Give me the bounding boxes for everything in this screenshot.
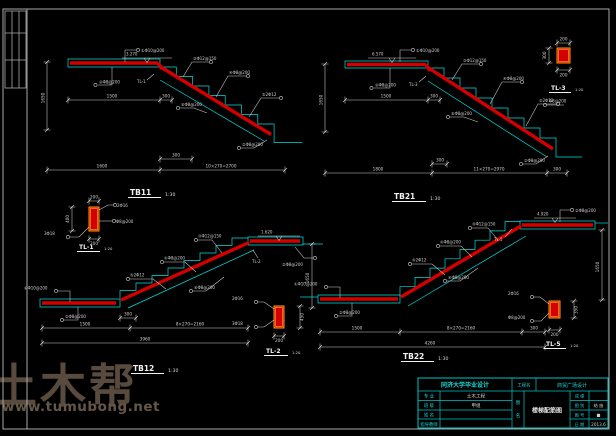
dimension-label: 300 xyxy=(124,312,132,317)
beam-detail-tl5: 3502002Φ16Φ8@200TL-51:20 xyxy=(508,291,579,349)
rebar-callout: 2Φ16 xyxy=(508,291,519,296)
leader-line xyxy=(328,287,340,298)
title-block: 同济大学毕业设计工程名商贸广场设计专 业土木工程班 级甲组姓 名指导教师图名楼梯… xyxy=(418,378,608,428)
drawing-title: TL-3 xyxy=(551,85,566,92)
rebar-callout: ②Φ8@200 xyxy=(65,314,86,319)
cell-text: 结 施 xyxy=(594,402,605,409)
leader-line xyxy=(58,291,70,302)
leader-circle xyxy=(519,162,522,165)
dimension-label: 450 xyxy=(300,313,305,321)
dimension-label: 1650 xyxy=(595,261,600,272)
stair-outline xyxy=(120,238,248,298)
rebar-callout: ⑤2Φ12 xyxy=(262,92,277,97)
rebar-callout: ④Φ8@200 xyxy=(503,76,524,81)
leader-circle xyxy=(254,300,257,303)
rebar-bar xyxy=(426,65,430,72)
cell-text: 图 号 xyxy=(575,413,585,419)
dimension-label: 200 xyxy=(275,338,283,343)
leader-line xyxy=(295,247,313,258)
dimension-label: 3960 xyxy=(140,337,151,342)
rebar-callout: 2Φ16 xyxy=(117,203,128,208)
project-name: 商贸广场设计 xyxy=(557,382,587,389)
leader-line xyxy=(440,246,472,257)
sheet-label: 名 xyxy=(516,412,521,419)
beam-ref-label: TL-2 xyxy=(251,259,261,264)
cell-text: 图 别 xyxy=(575,402,585,409)
level-value: 4.920 xyxy=(537,212,549,217)
cell-text: 日 期 xyxy=(575,422,585,428)
dimension-label: 300 xyxy=(530,326,538,331)
drawing-title: TL-5 xyxy=(546,341,561,348)
sheet-name: 楼梯配筋图 xyxy=(532,407,562,415)
stair-outline xyxy=(274,134,302,143)
dimension-label: 1650 xyxy=(319,94,324,105)
stair-section-tb21: 15003001650180011×270=2970300300①Φ10@200… xyxy=(319,48,583,202)
leader-line xyxy=(534,313,549,321)
stair-outline xyxy=(160,80,264,141)
dimension-label: 10×270=2700 xyxy=(206,164,237,169)
leader-line xyxy=(180,108,207,113)
dimension-label: 8×270=2160 xyxy=(176,322,205,327)
rebar-callout: ⑤2Φ12 xyxy=(130,273,145,278)
rebar-callout: ⑥Φ8@200 xyxy=(194,285,215,290)
rebar-callout: ③Φ12@150 xyxy=(472,222,496,227)
rebar-callout: ②Φ8@200 xyxy=(524,158,545,163)
leader-circle xyxy=(60,318,63,321)
dimension-label: 1600 xyxy=(97,164,108,169)
field-label: 指导教师 xyxy=(420,421,438,428)
rebar-callout: ①Φ10@200 xyxy=(416,48,440,53)
leader-line xyxy=(198,240,222,253)
leader-line xyxy=(534,297,549,304)
beam-detail-tl2: 4502002Φ163Φ18TL-21:20 xyxy=(232,296,305,356)
leader-line xyxy=(70,227,89,237)
drawing-title: TB12 xyxy=(133,364,154,373)
level-mark-icon xyxy=(368,58,416,63)
level-value: 3.270 xyxy=(126,52,138,57)
drawing-scale: 1:30 xyxy=(168,368,178,374)
leader-circle xyxy=(468,226,471,229)
stair-outline xyxy=(428,81,547,157)
dimension-label: 11×270=2970 xyxy=(474,167,505,172)
rebar-callout: ①Φ10@200 xyxy=(294,282,318,287)
leader-circle xyxy=(530,319,533,322)
leader-circle xyxy=(160,260,163,263)
dimension-label: 300 xyxy=(172,153,180,158)
leader-circle xyxy=(530,295,533,298)
beam-detail-tl1: 2004002002Φ16Φ8@2003Φ18TL-11:20 xyxy=(44,195,134,252)
drawing-scale: 1:30 xyxy=(165,192,175,198)
rebar-callout: Φ8@200 xyxy=(549,99,567,104)
school-name: 同济大学毕业设计 xyxy=(441,381,489,389)
leader-circle xyxy=(408,262,411,265)
dimension-line xyxy=(323,170,569,177)
rebar-callout: ③Φ12@150 xyxy=(198,234,222,239)
level-value: 1.620 xyxy=(261,230,273,235)
leader-circle xyxy=(370,86,373,89)
rebar-callout: Φ8@200 xyxy=(116,219,134,224)
cad-linework: 15003001650160010×270=2700300①Φ10@200②Φ8… xyxy=(0,0,616,436)
stair-outline xyxy=(556,148,582,157)
rebar-callout: ④Φ8@200 xyxy=(440,240,461,245)
leader-circle xyxy=(176,106,179,109)
rebar-callout: Φ8@200 xyxy=(508,315,526,320)
leader-line xyxy=(183,62,209,77)
cell-text: ■ xyxy=(597,413,601,418)
rebar-callout: ⑤2Φ12 xyxy=(412,258,427,263)
dimension-label: 300 xyxy=(553,167,561,172)
leader-circle xyxy=(324,285,327,288)
leader-line xyxy=(99,205,113,210)
dimension-label: 200 xyxy=(90,195,98,200)
field-value: 土木工程 xyxy=(467,393,486,400)
rebar-callout: ②Φ8@200 xyxy=(575,208,596,213)
cell-text: 2013.6 xyxy=(591,422,606,427)
dimension-line xyxy=(45,167,287,174)
rebar-callout: ③Φ12@150 xyxy=(463,58,487,63)
leader-circle xyxy=(66,235,69,238)
dimension-label: 1800 xyxy=(373,167,384,172)
field-label: 班 级 xyxy=(424,402,435,409)
dimension-line xyxy=(66,97,174,104)
leader-circle xyxy=(313,256,316,259)
dimension-label: 8×270=2160 xyxy=(447,326,476,331)
leader-circle xyxy=(237,146,240,149)
rebar-callout: ①Φ10@200 xyxy=(141,48,165,53)
dimension-label: 400 xyxy=(65,215,70,223)
leader-line xyxy=(258,302,274,309)
drawing-title: TL-1 xyxy=(79,244,94,251)
drawing-scale: 1:20 xyxy=(570,344,579,348)
dimension-label: 1650 xyxy=(41,92,46,103)
beam-section xyxy=(557,48,570,63)
drawing-scale: 1:20 xyxy=(292,351,301,355)
leader-circle xyxy=(443,279,446,282)
drawing-title: TB22 xyxy=(403,352,424,361)
level-mark-icon xyxy=(534,218,576,223)
dimension-label: 4260 xyxy=(425,341,436,346)
leader-circle xyxy=(279,96,282,99)
corner-grid-lines xyxy=(5,11,26,88)
drawing-scale: 1:20 xyxy=(575,88,584,92)
rebar-callout: ④Φ8@200 xyxy=(229,70,250,75)
leader-circle xyxy=(446,115,449,118)
leader-circle xyxy=(334,314,337,317)
leader-line xyxy=(526,104,556,126)
rebar-callout: 3Φ18 xyxy=(44,231,55,236)
project-label: 工程名 xyxy=(518,382,531,389)
rebar-bar xyxy=(158,63,162,69)
leader-line xyxy=(258,320,274,327)
dimension-label: 350 xyxy=(574,306,579,314)
field-value: 甲组 xyxy=(471,402,481,409)
beam-ref-label: TL-5 xyxy=(493,237,503,242)
dimension-label: 200 xyxy=(551,332,559,337)
ref-leader xyxy=(253,250,258,258)
leader-line xyxy=(450,117,478,122)
rebar-callout: ②Φ8@200 xyxy=(99,80,120,85)
dimension-label: 1500 xyxy=(381,94,392,99)
rebar-callout: 3Φ18 xyxy=(232,321,243,326)
leader-line xyxy=(216,76,246,97)
rebar-callout: ②Φ8@200 xyxy=(339,310,360,315)
rebar-bar xyxy=(160,67,271,135)
drawing-title: TB21 xyxy=(394,192,415,201)
drawing-sheet: 土木帮 www.tumubong.net 15003001650160010×2… xyxy=(0,0,616,436)
rebar-callout: ②Φ8@200 xyxy=(375,83,396,88)
rebar-callout: ③Φ12@150 xyxy=(193,56,217,61)
leader-line xyxy=(452,64,479,80)
dimension-label: 1500 xyxy=(80,322,91,327)
dimension-label: 300 xyxy=(436,158,444,163)
drawing-scale: 1:20 xyxy=(104,247,113,251)
leader-circle xyxy=(189,289,192,292)
beam-detail-tl3: 200300200Φ8@200TL-31:20 xyxy=(542,37,584,107)
leader-line xyxy=(400,50,411,62)
stair-section-tb22: 15008×270=216030042601650③Φ12@150④Φ8@200… xyxy=(294,208,608,362)
rebar-callout: ⑥Φ8@200 xyxy=(181,102,202,107)
drawing-scale: 1:30 xyxy=(438,356,448,362)
rebar-callout: ①Φ10@200 xyxy=(24,286,48,291)
field-label: 姓 名 xyxy=(424,412,434,419)
leader-circle xyxy=(94,83,97,86)
dimension-label: 300 xyxy=(162,94,170,99)
dimension-label: 1500 xyxy=(352,326,363,331)
rebar-callout: ④Φ8@200 xyxy=(164,256,185,261)
beam-ref-label: TL-3 xyxy=(408,82,418,87)
leader-circle xyxy=(411,48,414,51)
leader-line xyxy=(560,210,570,222)
ref-leader xyxy=(419,76,426,82)
beam-ref-label: TL-1 xyxy=(136,79,146,84)
leader-circle xyxy=(254,325,257,328)
drawing-scale: 1:30 xyxy=(430,196,440,202)
leader-circle xyxy=(570,208,573,211)
field-label: 专 业 xyxy=(424,393,435,400)
rebar-callout: ②Φ8@200 xyxy=(282,262,303,267)
dimension-label: 200 xyxy=(560,73,568,78)
dimension-line xyxy=(343,97,442,104)
ref-leader xyxy=(147,74,154,80)
dimension-line xyxy=(40,325,250,332)
rebar-callout: ⑥Φ8@200 xyxy=(448,275,469,280)
rebar-callout: ②Φ8@200 xyxy=(242,142,263,147)
leader-circle xyxy=(194,238,197,241)
corner-grid xyxy=(5,11,26,88)
rebar-callout: ⑥Φ8@200 xyxy=(451,111,472,116)
stair-section-tb11: 15003001650160010×270=2700300①Φ10@200②Φ8… xyxy=(41,48,303,198)
cell-text: 成 绩 xyxy=(575,393,586,400)
dimension-label: 200 xyxy=(560,37,568,42)
dimension-label: 300 xyxy=(430,94,438,99)
rebar-bar xyxy=(121,243,249,301)
leader-circle xyxy=(436,244,439,247)
sheet-label: 图 xyxy=(516,400,521,406)
leader-circle xyxy=(126,277,129,280)
drawing-title: TL-2 xyxy=(266,348,281,355)
leader-circle xyxy=(54,289,57,292)
drawing-title: TB11 xyxy=(130,188,151,197)
rebar-callout: 2Φ16 xyxy=(232,296,243,301)
rebar-bar xyxy=(428,68,553,150)
level-value: 6.570 xyxy=(372,52,384,57)
dimension-label: 300 xyxy=(542,51,547,59)
dimension-label: 1500 xyxy=(107,94,118,99)
leader-line xyxy=(490,82,520,104)
